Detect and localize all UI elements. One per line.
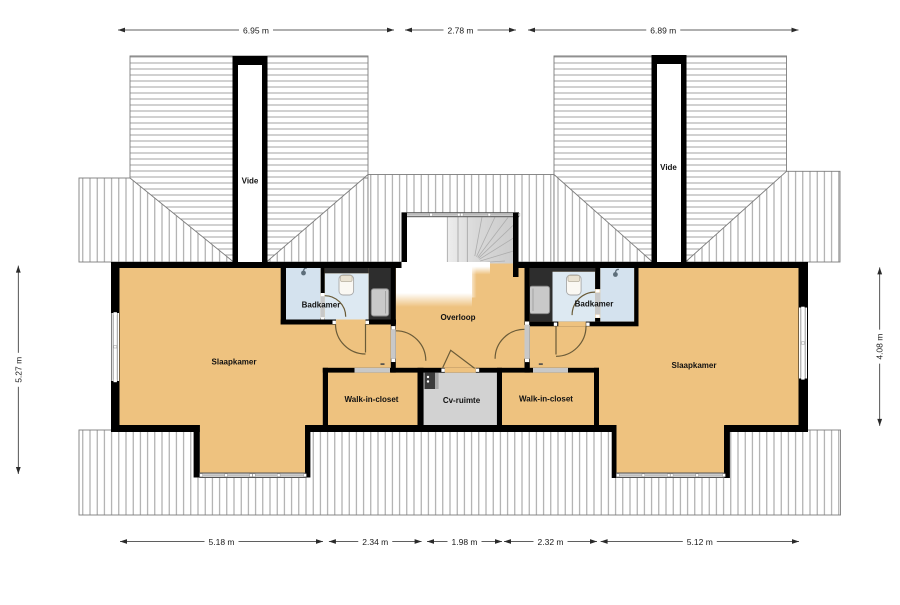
svg-text:5.27 m: 5.27 m: [13, 357, 23, 383]
svg-text:5.12 m: 5.12 m: [687, 537, 713, 547]
svg-text:5.18 m: 5.18 m: [209, 537, 235, 547]
svg-text:Slaapkamer: Slaapkamer: [672, 361, 717, 370]
svg-text:2.34 m: 2.34 m: [362, 537, 388, 547]
svg-text:Walk-in-closet: Walk-in-closet: [345, 395, 399, 404]
svg-text:2.78 m: 2.78 m: [448, 26, 474, 36]
svg-text:Overloop: Overloop: [440, 313, 475, 322]
svg-text:2.32 m: 2.32 m: [538, 537, 564, 547]
svg-text:6.95 m: 6.95 m: [243, 26, 269, 36]
svg-text:Walk-in-closet: Walk-in-closet: [519, 395, 573, 404]
svg-text:4.08 m: 4.08 m: [875, 334, 885, 360]
svg-text:Vide: Vide: [242, 177, 259, 186]
svg-text:Slaapkamer: Slaapkamer: [212, 358, 257, 367]
svg-text:6.89 m: 6.89 m: [650, 26, 676, 36]
svg-text:Cv-ruimte: Cv-ruimte: [443, 396, 481, 405]
svg-text:Vide: Vide: [660, 163, 677, 172]
svg-text:Badkamer: Badkamer: [575, 300, 614, 309]
svg-text:Badkamer: Badkamer: [302, 301, 341, 310]
svg-text:1.98 m: 1.98 m: [452, 537, 478, 547]
